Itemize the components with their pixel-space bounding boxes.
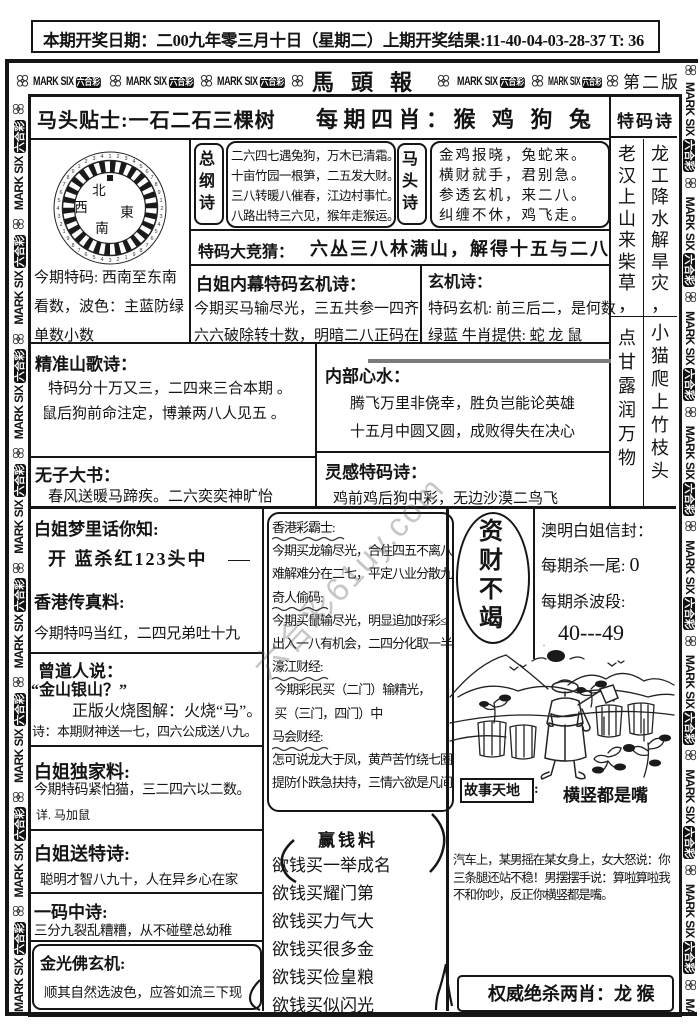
svg-text:7: 7 <box>77 248 80 254</box>
svg-text:2: 2 <box>59 222 62 228</box>
svg-text:3: 3 <box>159 214 162 220</box>
svg-text:5: 5 <box>57 198 60 204</box>
svg-text:8: 8 <box>71 243 74 249</box>
svg-text:8: 8 <box>139 248 142 254</box>
svg-text:4: 4 <box>157 222 160 228</box>
svg-text:6: 6 <box>59 190 62 196</box>
svg-text:6: 6 <box>145 169 148 175</box>
svg-text:1: 1 <box>62 229 65 235</box>
svg-text:9: 9 <box>157 190 160 196</box>
svg-text:4: 4 <box>100 257 103 263</box>
svg-text:6: 6 <box>150 236 153 242</box>
svg-text:3: 3 <box>92 156 95 162</box>
svg-text:東: 東 <box>120 205 134 220</box>
svg-text:7: 7 <box>145 243 148 249</box>
svg-text:3: 3 <box>57 214 60 220</box>
svg-text:2: 2 <box>84 159 87 165</box>
svg-text:9: 9 <box>66 236 69 242</box>
svg-text:6: 6 <box>84 252 87 258</box>
svg-text:4: 4 <box>132 159 135 165</box>
svg-text:2: 2 <box>160 206 163 212</box>
svg-text:1: 1 <box>77 164 80 170</box>
svg-text:西: 西 <box>74 200 88 215</box>
svg-text:3: 3 <box>124 156 127 162</box>
svg-text:3: 3 <box>108 258 111 264</box>
svg-text:1: 1 <box>124 255 127 261</box>
svg-text:北: 北 <box>92 183 106 198</box>
svg-text:5: 5 <box>139 164 142 170</box>
svg-text:4: 4 <box>56 206 59 212</box>
svg-text:南: 南 <box>95 221 109 236</box>
svg-text:8: 8 <box>154 182 157 188</box>
svg-text:2: 2 <box>116 154 119 160</box>
svg-text:1: 1 <box>108 154 111 160</box>
svg-text:9: 9 <box>71 169 74 175</box>
svg-text:5: 5 <box>154 229 157 235</box>
svg-text:9: 9 <box>132 252 135 258</box>
svg-text:2: 2 <box>116 257 119 263</box>
svg-text:5: 5 <box>92 255 95 261</box>
svg-text:7: 7 <box>62 182 65 188</box>
svg-text:8: 8 <box>66 175 69 181</box>
svg-text:1: 1 <box>159 198 162 204</box>
svg-text:7: 7 <box>150 175 153 181</box>
svg-text:4: 4 <box>100 154 103 160</box>
